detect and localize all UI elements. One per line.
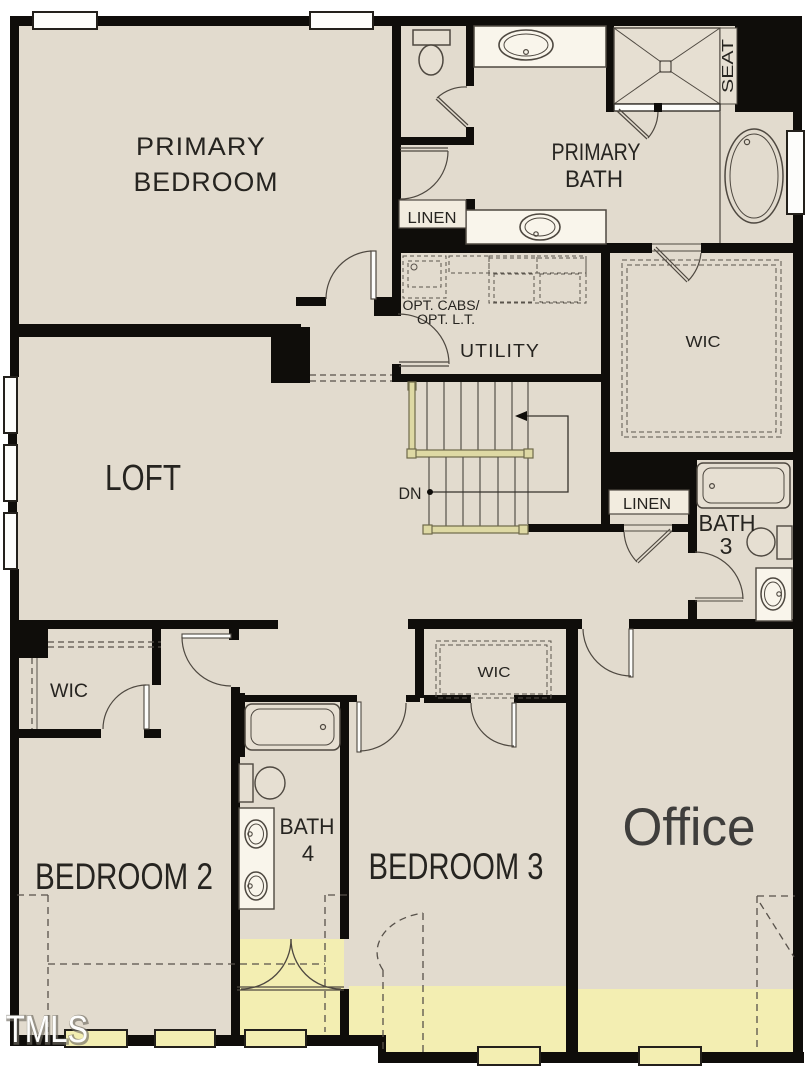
svg-text:Office: Office — [623, 798, 756, 857]
svg-text:LINEN: LINEN — [623, 496, 671, 513]
svg-text:PRIMARY: PRIMARY — [136, 133, 266, 161]
svg-text:LOFT: LOFT — [105, 457, 181, 498]
svg-text:UTILITY: UTILITY — [460, 341, 540, 361]
svg-text:WIC: WIC — [478, 664, 511, 681]
svg-text:SEAT: SEAT — [720, 39, 737, 93]
svg-text:4: 4 — [302, 841, 314, 866]
svg-text:TMLS: TMLS — [6, 1009, 88, 1051]
svg-text:BATH: BATH — [280, 814, 335, 839]
svg-text:BATH: BATH — [565, 166, 623, 193]
svg-text:OPT. CABS/: OPT. CABS/ — [403, 298, 480, 313]
svg-text:WIC: WIC — [50, 681, 88, 702]
svg-text:3: 3 — [720, 533, 733, 559]
svg-text:DN: DN — [399, 484, 422, 503]
svg-text:WIC: WIC — [686, 334, 721, 351]
svg-text:LINEN: LINEN — [408, 210, 457, 227]
svg-text:BEDROOM 3: BEDROOM 3 — [369, 846, 544, 887]
svg-text:PRIMARY: PRIMARY — [552, 139, 641, 166]
svg-text:BEDROOM: BEDROOM — [134, 167, 279, 197]
svg-text:OPT. L.T.: OPT. L.T. — [417, 312, 475, 327]
svg-text:BEDROOM 2: BEDROOM 2 — [35, 856, 213, 897]
